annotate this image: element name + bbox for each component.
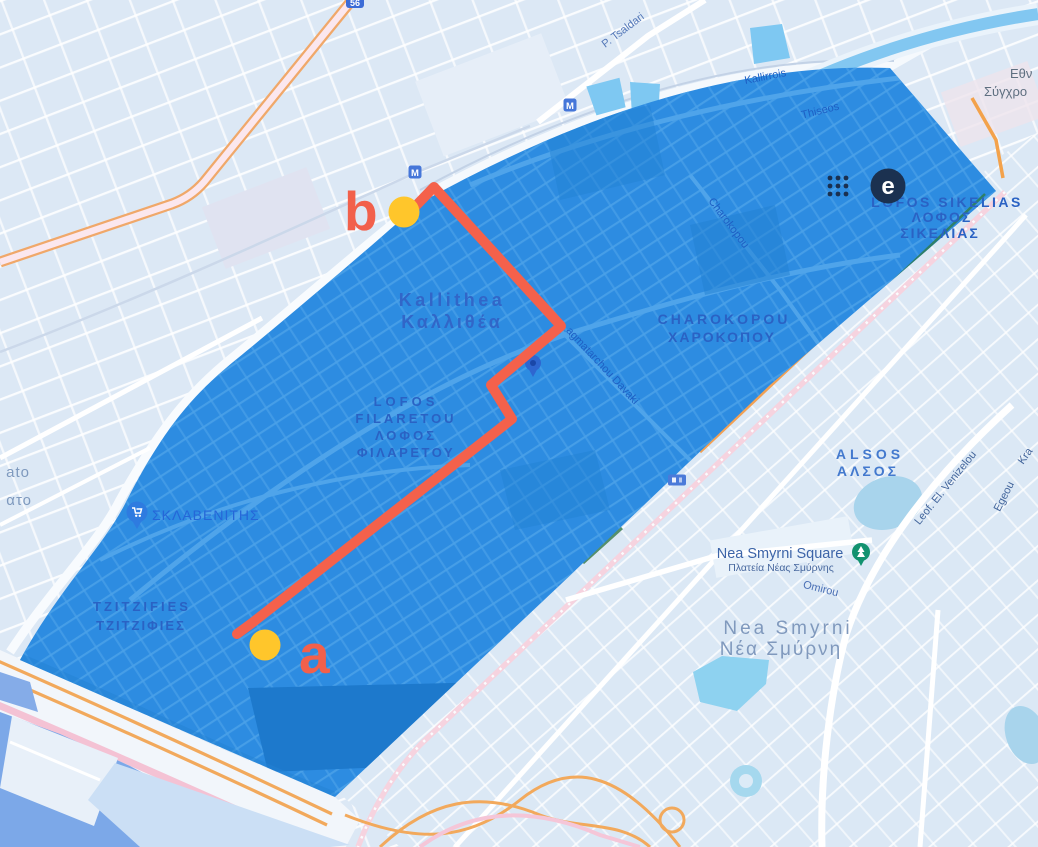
svg-text:Kallithea: Kallithea: [399, 290, 506, 310]
svg-text:M: M: [566, 101, 574, 112]
svg-text:FILARETOU: FILARETOU: [355, 411, 456, 426]
svg-text:Πλατεία Νέας Σμύρνης: Πλατεία Νέας Σμύρνης: [728, 562, 834, 574]
svg-text:b: b: [344, 180, 378, 242]
svg-text:ΣΚΛΑΒΕΝΙΤΗΣ: ΣΚΛΑΒΕΝΙΤΗΣ: [152, 507, 260, 523]
svg-text:ΤΖΙΤΖΙΦΙΕΣ: ΤΖΙΤΖΙΦΙΕΣ: [96, 618, 186, 633]
svg-text:Σύγχρο: Σύγχρο: [984, 84, 1027, 99]
svg-text:TZITZIFIES: TZITZIFIES: [93, 599, 191, 614]
svg-text:ατο: ατο: [6, 492, 32, 509]
svg-text:ato: ato: [6, 464, 30, 481]
svg-text:M: M: [411, 168, 419, 179]
svg-text:Nea Smyrni Square: Nea Smyrni Square: [717, 546, 844, 562]
svg-text:ΑΛΣΟΣ: ΑΛΣΟΣ: [837, 463, 899, 479]
svg-text:ΣΙΚΕΛΙΑΣ: ΣΙΚΕΛΙΑΣ: [900, 225, 979, 241]
svg-text:ΛΟΦΟΣ: ΛΟΦΟΣ: [912, 209, 973, 225]
svg-text:CHAROKOPOU: CHAROKOPOU: [658, 311, 791, 327]
svg-text:ΧΑΡΟΚΟΠΟΥ: ΧΑΡΟΚΟΠΟΥ: [668, 329, 776, 345]
svg-text:a: a: [299, 623, 330, 685]
svg-text:ΛΟΦΟΣ: ΛΟΦΟΣ: [375, 428, 437, 443]
svg-text:Νέα Σμύρνη: Νέα Σμύρνη: [720, 639, 842, 660]
svg-text:ΦΙΛΑΡΕΤΟΥ: ΦΙΛΑΡΕΤΟΥ: [357, 445, 455, 460]
svg-text:Εθν: Εθν: [1010, 66, 1032, 81]
svg-text:ALSOS: ALSOS: [836, 446, 904, 462]
svg-text:Καλλιθέα: Καλλιθέα: [401, 312, 503, 332]
svg-text:56: 56: [350, 0, 360, 8]
svg-text:LOFOS: LOFOS: [374, 394, 439, 409]
svg-text:Nea Smyrni: Nea Smyrni: [723, 618, 852, 639]
svg-text:e: e: [881, 173, 894, 200]
